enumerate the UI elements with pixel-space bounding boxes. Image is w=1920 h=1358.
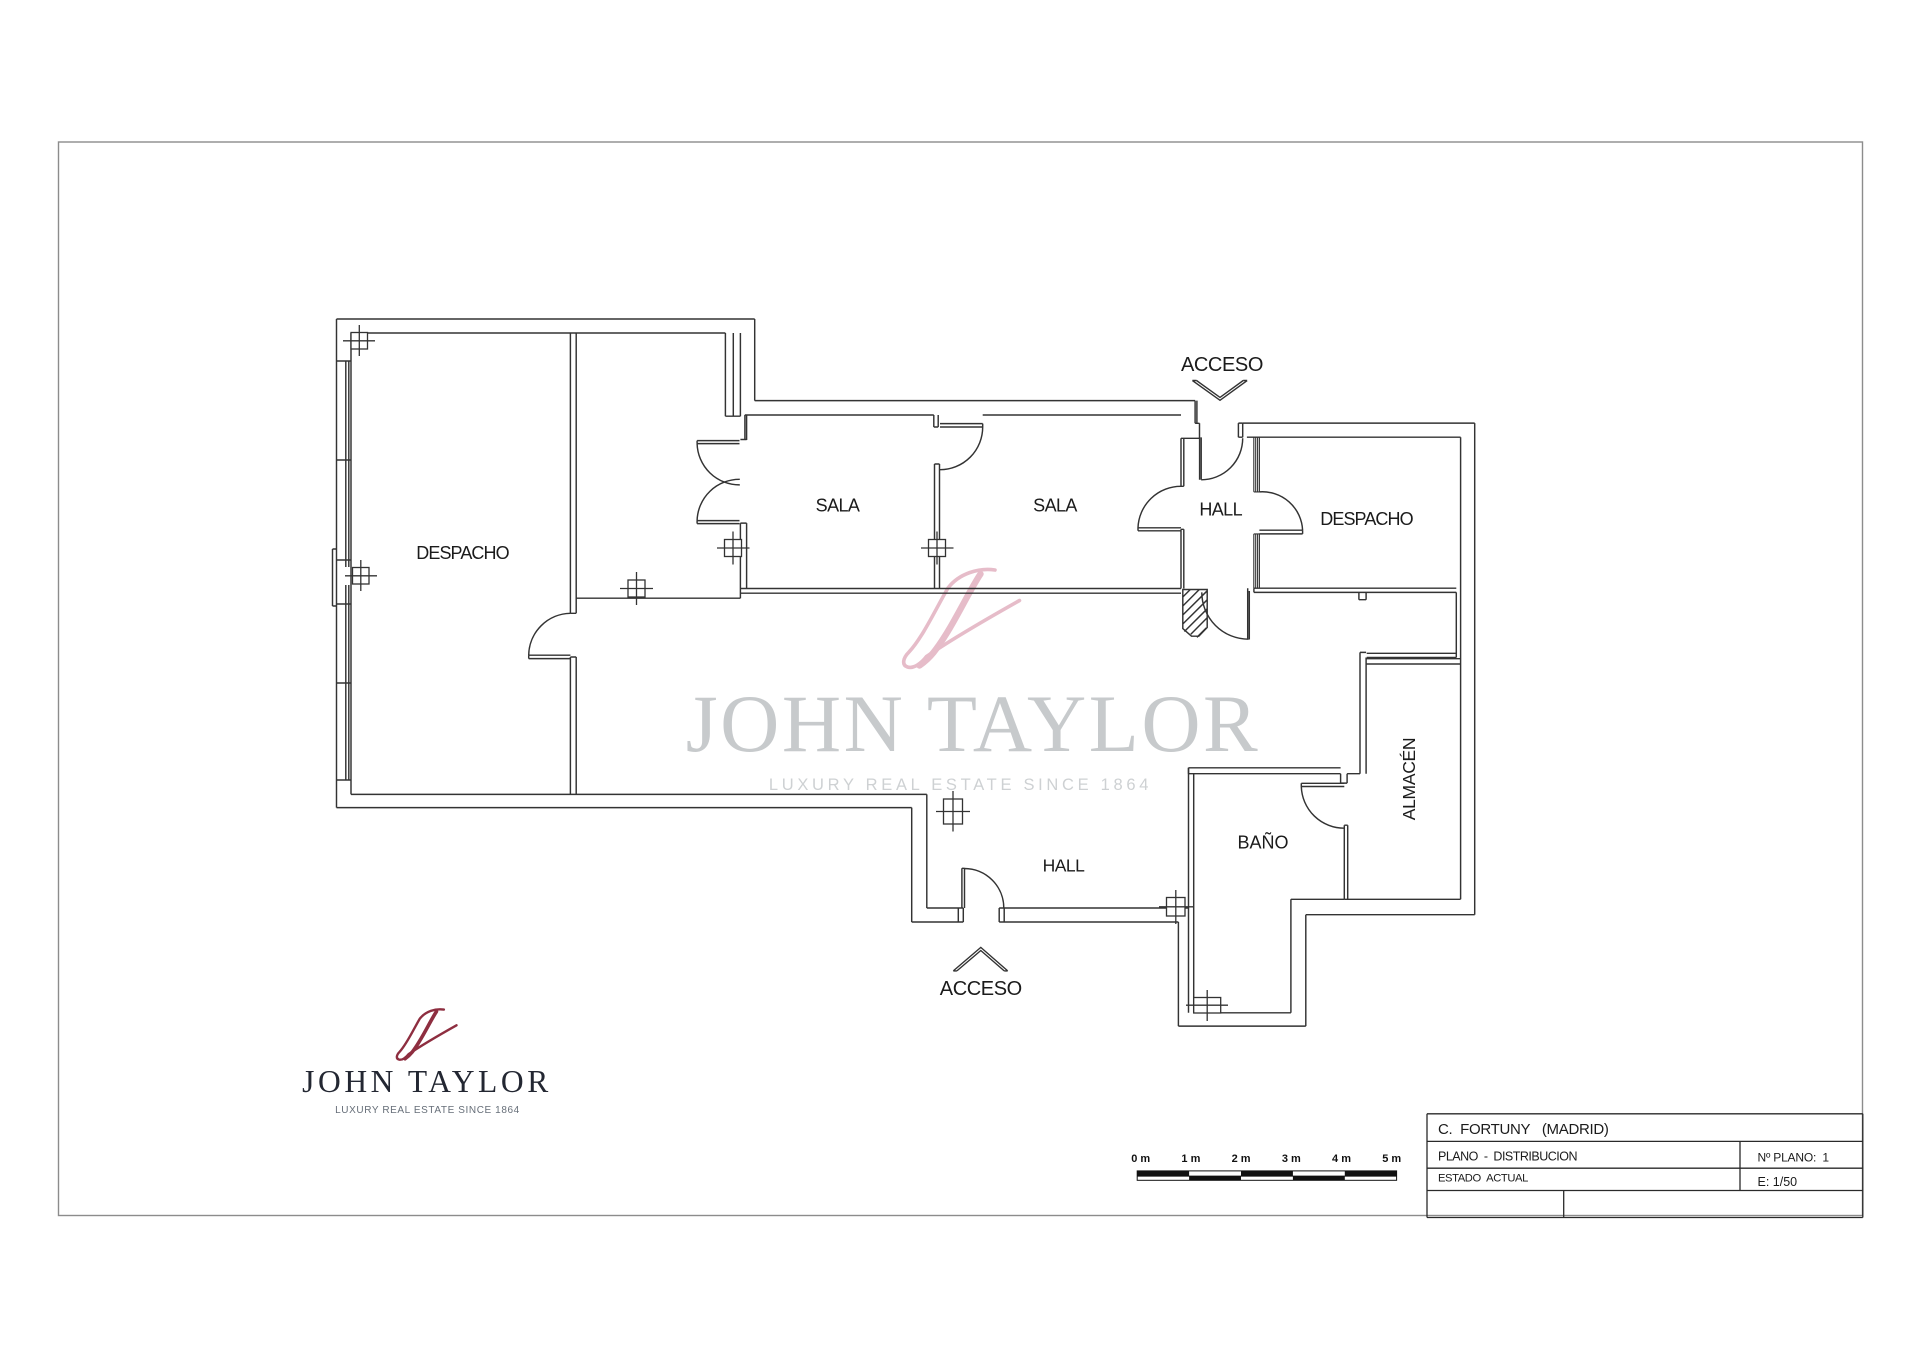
svg-text:ACCESO: ACCESO	[1181, 354, 1263, 376]
svg-text:JOHN TAYLOR: JOHN TAYLOR	[686, 678, 1261, 769]
svg-text:0 m: 0 m	[1131, 1153, 1150, 1165]
svg-text:JOHN TAYLOR: JOHN TAYLOR	[302, 1064, 552, 1099]
svg-text:SALA: SALA	[816, 496, 860, 516]
svg-text:DESPACHO: DESPACHO	[416, 543, 509, 563]
svg-text:SALA: SALA	[1033, 496, 1077, 516]
svg-text:BAÑO: BAÑO	[1237, 832, 1288, 853]
svg-text:ACCESO: ACCESO	[940, 978, 1022, 1000]
svg-text:LUXURY REAL ESTATE SINCE 1864: LUXURY REAL ESTATE SINCE 1864	[335, 1105, 520, 1116]
svg-text:ESTADO ACTUAL: ESTADO ACTUAL	[1438, 1173, 1528, 1185]
svg-text:C. FORTUNY (MADRID): C. FORTUNY (MADRID)	[1438, 1121, 1609, 1138]
svg-text:HALL: HALL	[1043, 856, 1086, 876]
svg-text:5 m: 5 m	[1382, 1153, 1401, 1165]
svg-text:LUXURY REAL ESTATE SINCE 1864: LUXURY REAL ESTATE SINCE 1864	[769, 776, 1152, 794]
svg-text:PLANO - DISTRIBUCION: PLANO - DISTRIBUCION	[1438, 1150, 1577, 1164]
svg-text:1 m: 1 m	[1181, 1153, 1200, 1165]
svg-text:3 m: 3 m	[1282, 1153, 1301, 1165]
svg-text:E: 1/50: E: 1/50	[1758, 1175, 1798, 1189]
svg-text:2 m: 2 m	[1232, 1153, 1251, 1165]
svg-text:4 m: 4 m	[1332, 1153, 1351, 1165]
svg-text:ALMACÉN: ALMACÉN	[1399, 738, 1419, 821]
svg-text:DESPACHO: DESPACHO	[1320, 509, 1413, 529]
svg-text:HALL: HALL	[1199, 500, 1242, 520]
svg-text:Nº PLANO: 1: Nº PLANO: 1	[1758, 1151, 1830, 1165]
